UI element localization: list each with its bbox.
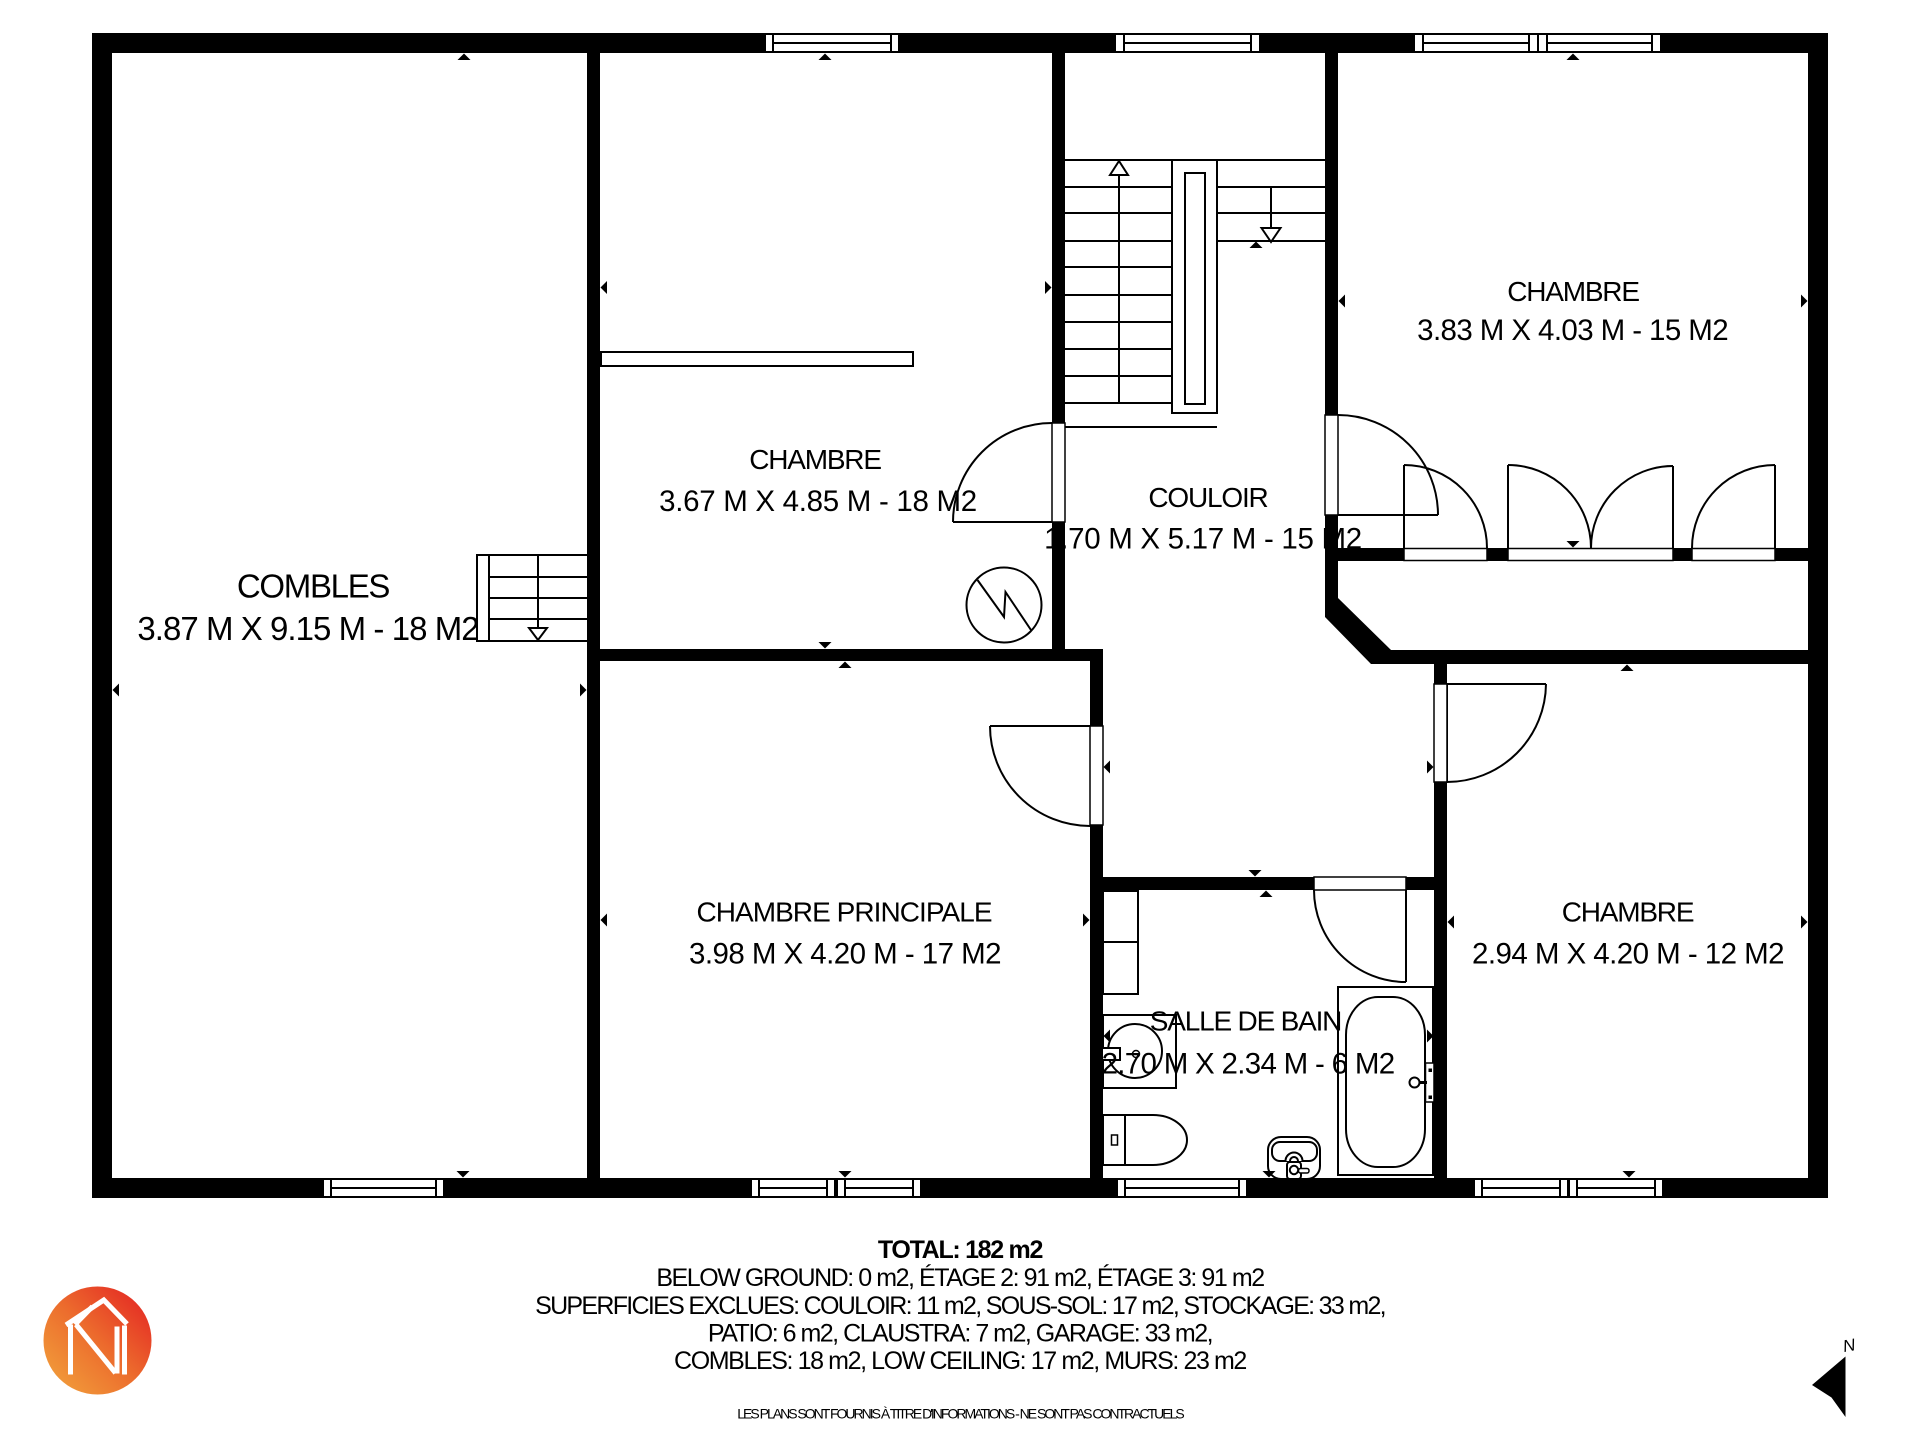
svg-text:SALLE DE BAIN: SALLE DE BAIN	[1150, 1005, 1341, 1036]
svg-text:COMBLES: 18 m2, LOW CEILING: 1: COMBLES: 18 m2, LOW CEILING: 17 m2, MURS…	[674, 1347, 1246, 1375]
svg-text:CHAMBRE PRINCIPALE: CHAMBRE PRINCIPALE	[696, 897, 991, 928]
svg-text:CHAMBRE: CHAMBRE	[749, 444, 881, 475]
svg-text:TOTAL: 182 m2: TOTAL: 182 m2	[878, 1236, 1043, 1264]
svg-text:BELOW GROUND: 0 m2, ÉTAGE 2: 9: BELOW GROUND: 0 m2, ÉTAGE 2: 91 m2, ÉTAG…	[656, 1263, 1264, 1292]
svg-text:COULOIR: COULOIR	[1148, 482, 1267, 513]
svg-text:SUPERFICIES EXCLUES: COULOIR:: SUPERFICIES EXCLUES: COULOIR: 11 m2, SOU…	[535, 1292, 1385, 1320]
svg-text:COMBLES: COMBLES	[237, 568, 390, 605]
svg-text:2.70 M X 2.34 M - 6 M2: 2.70 M X 2.34 M - 6 M2	[1102, 1047, 1395, 1080]
svg-text:CHAMBRE: CHAMBRE	[1562, 897, 1694, 928]
svg-text:1.70 M X 5.17 M - 15 M2: 1.70 M X 5.17 M - 15 M2	[1044, 523, 1362, 556]
svg-text:3.67 M X 4.85 M - 18 M2: 3.67 M X 4.85 M - 18 M2	[659, 485, 977, 518]
svg-text:3.98 M X 4.20 M - 17 M2: 3.98 M X 4.20 M - 17 M2	[689, 937, 1001, 970]
svg-text:LES PLANS SONT FOURNIS À TITRE: LES PLANS SONT FOURNIS À TITRE D'INFORMA…	[737, 1406, 1184, 1422]
svg-text:3.83 M X 4.03 M - 15 M2: 3.83 M X 4.03 M - 15 M2	[1417, 314, 1728, 347]
svg-text:PATIO: 6 m2, CLAUSTRA: 7 m2, G: PATIO: 6 m2, CLAUSTRA: 7 m2, GARAGE: 33 …	[708, 1320, 1212, 1348]
svg-text:CHAMBRE: CHAMBRE	[1507, 276, 1639, 307]
svg-text:2.94 M X 4.20 M - 12 M2: 2.94 M X 4.20 M - 12 M2	[1472, 937, 1784, 970]
svg-text:3.87 M X 9.15 M - 18 M2: 3.87 M X 9.15 M - 18 M2	[137, 610, 478, 647]
